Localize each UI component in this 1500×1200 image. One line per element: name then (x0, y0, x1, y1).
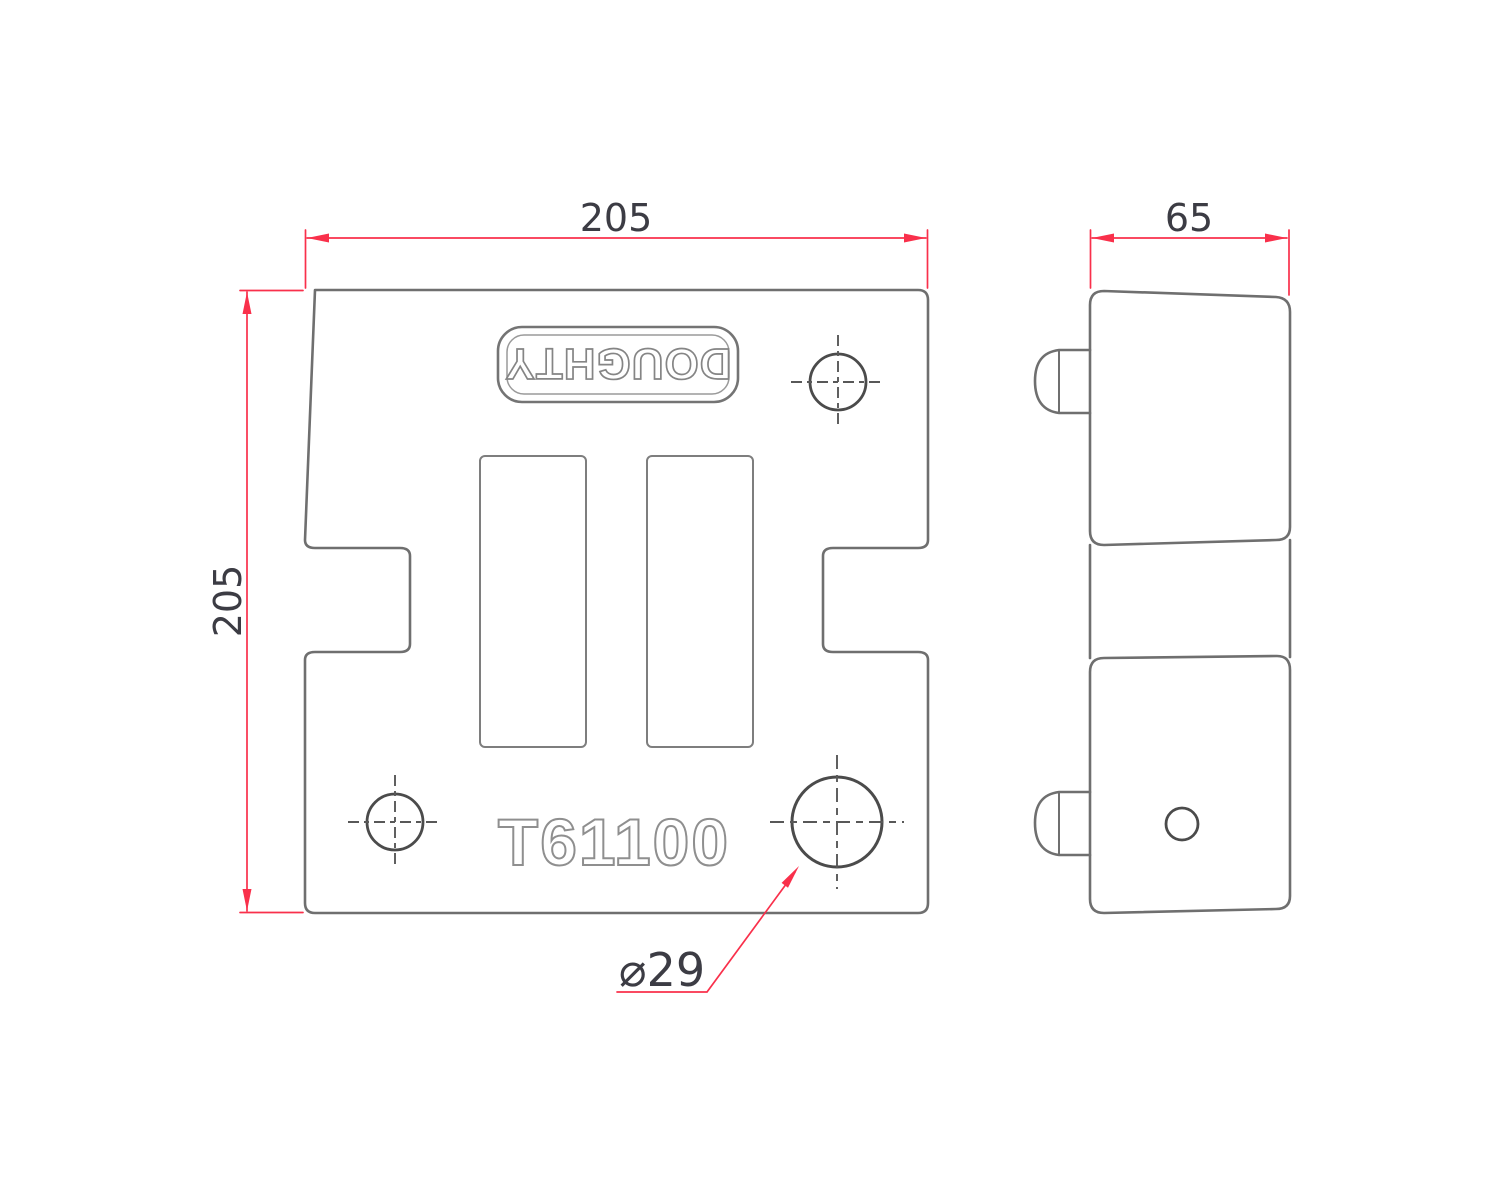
side-bottom-tab-outline (1035, 792, 1090, 855)
side-bottom-block (1090, 656, 1290, 913)
dim-left-arrow-bottom (243, 889, 252, 911)
side-view (1035, 291, 1290, 913)
brand-logo-text: DOUGHTY (505, 339, 732, 388)
side-top-tab-outline (1035, 350, 1090, 413)
side-top-tab (1035, 350, 1090, 413)
slot-left (480, 456, 586, 747)
dim-top-width-label: 205 (580, 196, 653, 240)
front-view: DOUGHTY T61100 (305, 290, 928, 913)
brand-badge: DOUGHTY (498, 327, 738, 402)
dim-hole-diameter-label: ⌀29 (619, 943, 705, 997)
slot-right (647, 456, 753, 747)
part-number-text: T61100 (498, 805, 730, 879)
dim-left-height-label: 205 (206, 565, 250, 638)
dim-side-arrow-left (1092, 234, 1114, 243)
side-top-block (1090, 291, 1290, 545)
dim-side-depth-label: 65 (1165, 196, 1213, 240)
drawing-page: DOUGHTY T61100 (0, 0, 1500, 1200)
side-bottom-tab (1035, 792, 1090, 855)
dim-side-arrow-right (1265, 234, 1287, 243)
technical-drawing-canvas: DOUGHTY T61100 (0, 0, 1500, 1200)
dim-top-arrow-left (307, 234, 329, 243)
dim-top-arrow-right (904, 234, 926, 243)
dim-left-arrow-top (243, 292, 252, 314)
